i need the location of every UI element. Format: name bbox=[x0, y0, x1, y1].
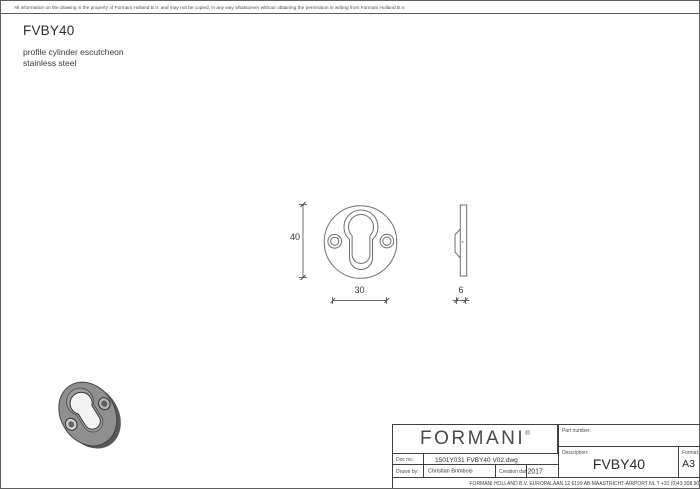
dim-thickness-label: 6 bbox=[453, 285, 469, 295]
part-code-title: FVBY40 bbox=[23, 23, 74, 38]
part-number-label: Part number: bbox=[562, 428, 591, 434]
front-view-drawing bbox=[323, 204, 401, 282]
registered-trademark-icon: ® bbox=[525, 430, 530, 437]
format-label: Format: bbox=[682, 450, 699, 456]
drawing-sheet: All information on the drawing is the pr… bbox=[0, 0, 700, 489]
description-cell: Description: FVBY40 bbox=[559, 447, 679, 477]
drawn-by-label-cell: Drawn by: bbox=[393, 465, 424, 477]
part-number-cell: Part number: bbox=[559, 425, 699, 447]
doc-no-value-cell: 1501Y031 FVBY40 V02.dwg bbox=[424, 454, 557, 464]
height-dimension-line bbox=[296, 201, 310, 283]
part-description-subtitle: profile cylinder escutcheon stainless st… bbox=[23, 47, 124, 68]
formani-logo-text: FORMANI® bbox=[420, 428, 530, 450]
drawn-by-value-cell: Christian Brimbois bbox=[424, 465, 496, 477]
format-value: A3 bbox=[679, 458, 698, 470]
company-footer-text: FORMANI HOLLAND B.V. EUROPALAAN 12 6199 … bbox=[470, 480, 623, 486]
drawn-by-row: Drawn by: Christian Brimbois Creation da… bbox=[393, 465, 558, 477]
drawn-by-label: Drawn by: bbox=[396, 469, 419, 475]
doc-no-label-cell: Doc no.: bbox=[393, 454, 424, 464]
disclaimer-text: All information on the drawing is the pr… bbox=[14, 4, 405, 10]
thickness-dimension-line bbox=[452, 296, 470, 306]
dim-height-label: 40 bbox=[283, 232, 300, 242]
disclaimer-bar: All information on the drawing is the pr… bbox=[1, 1, 699, 14]
doc-no-value: 1501Y031 FVBY40 V02.dwg bbox=[435, 455, 518, 463]
dim-width-label: 30 bbox=[344, 285, 375, 295]
company-footer: FORMANI HOLLAND B.V. EUROPALAAN 12 6199 … bbox=[393, 477, 699, 488]
creation-date-label: Creation date: bbox=[499, 469, 527, 475]
description-label: Description: bbox=[562, 450, 588, 456]
drawn-by-value: Christian Brimbois bbox=[428, 468, 473, 474]
description-value: FVBY40 bbox=[559, 456, 679, 472]
side-view-drawing bbox=[451, 201, 471, 283]
creation-date-value: 22-8-2017 bbox=[527, 467, 543, 475]
subtitle-line-1: profile cylinder escutcheon bbox=[23, 47, 124, 58]
format-cell: Format: A3 bbox=[679, 447, 699, 477]
formani-logo: FORMANI® bbox=[393, 425, 558, 454]
doc-no-row: Doc no.: 1501Y031 FVBY40 V02.dwg bbox=[393, 454, 558, 465]
creation-date-label-cell: Creation date: bbox=[496, 465, 527, 477]
creation-date-value-cell: 22-8-2017 bbox=[527, 465, 558, 477]
doc-no-label: Doc no.: bbox=[396, 457, 415, 463]
product-3d-render bbox=[49, 367, 131, 463]
title-block-right-section: Part number: Description: FVBY40 Format:… bbox=[558, 425, 699, 477]
subtitle-line-2: stainless steel bbox=[23, 58, 124, 69]
title-block: FORMANI® Doc no.: 1501Y031 FVBY40 V02.dw… bbox=[392, 424, 700, 489]
width-dimension-line bbox=[330, 296, 390, 306]
